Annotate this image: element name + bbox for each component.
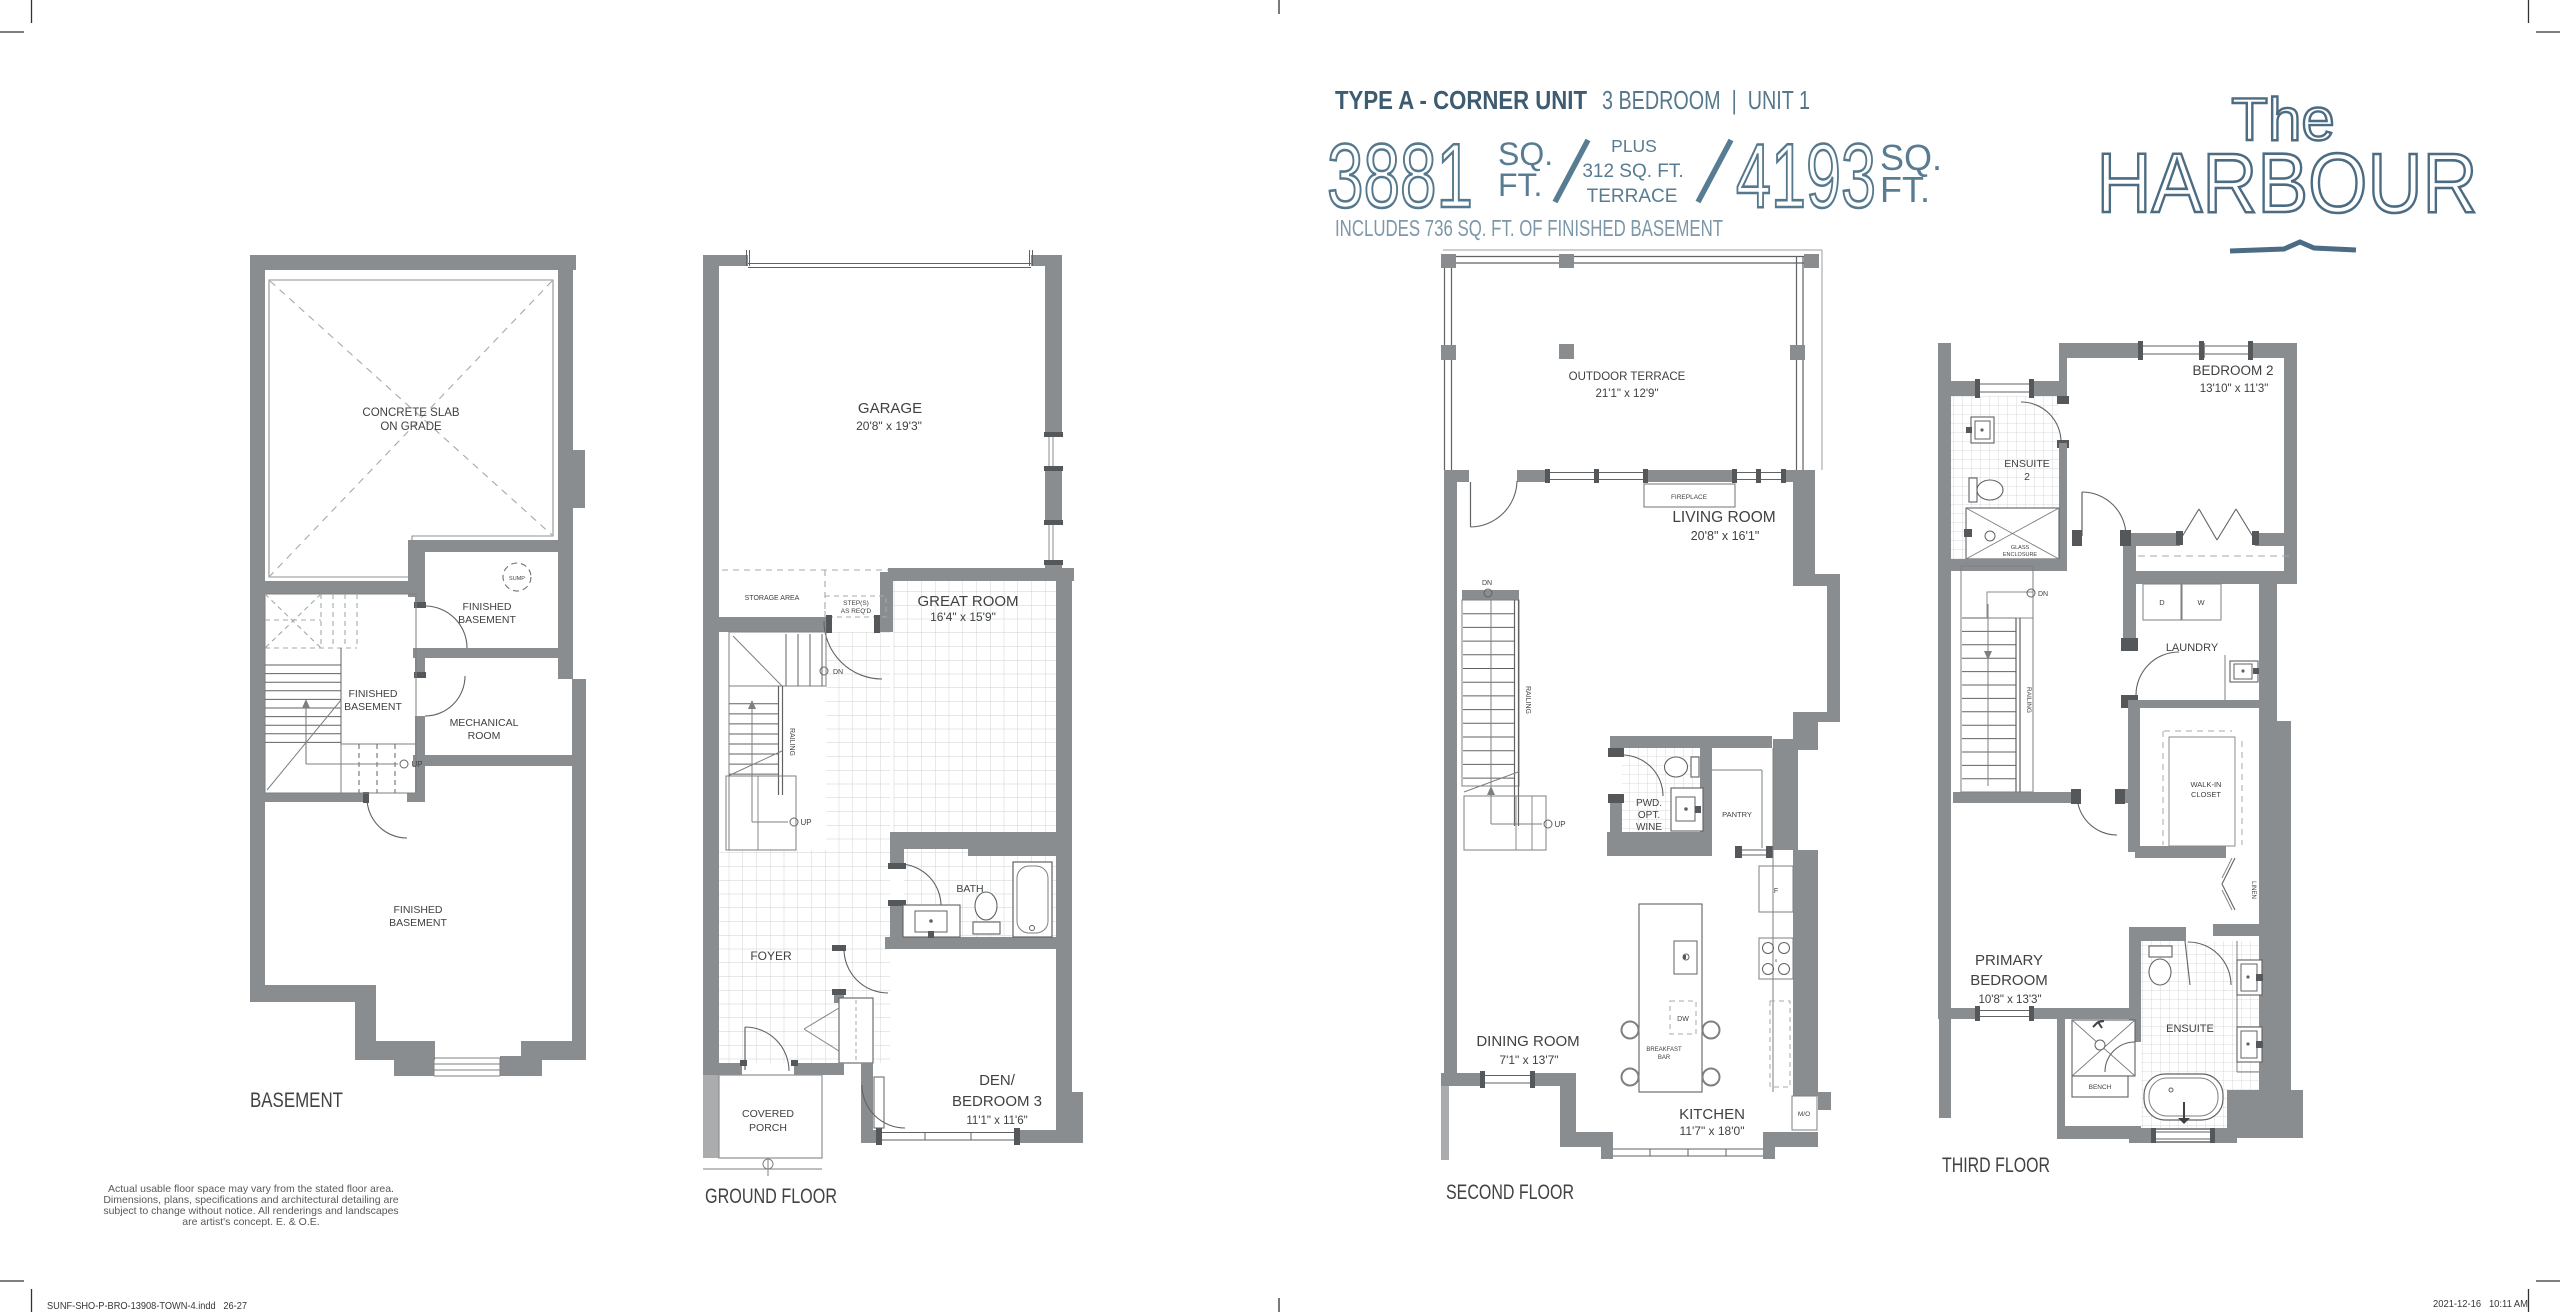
svg-text:UP: UP [1554,820,1565,829]
svg-text:7'1" x 13'7": 7'1" x 13'7" [1499,1053,1558,1067]
svg-text:DINING ROOM: DINING ROOM [1476,1033,1579,1050]
svg-text:SECOND FLOOR: SECOND FLOOR [1446,1181,1574,1204]
svg-text:OPT.: OPT. [1638,810,1660,821]
svg-text:D: D [2159,598,2165,607]
svg-text:BAR: BAR [1658,1055,1671,1061]
svg-text:BASEMENT: BASEMENT [344,701,402,713]
svg-text:RAILING: RAILING [2025,687,2032,713]
svg-text:10'8" x 13'3": 10'8" x 13'3" [1978,994,2041,1006]
svg-text:4193: 4193 [1736,126,1876,227]
svg-text:ENCLOSURE: ENCLOSURE [2003,552,2038,558]
svg-text:2: 2 [2024,471,2030,483]
svg-text:KITCHEN: KITCHEN [1679,1106,1745,1123]
svg-text:FT.: FT. [1498,167,1542,203]
svg-text:M/O: M/O [1798,1111,1810,1118]
svg-text:DW: DW [1677,1016,1689,1023]
svg-text:CLOSET: CLOSET [2191,790,2221,799]
svg-text:STORAGE AREA: STORAGE AREA [745,595,800,602]
svg-text:FT.: FT. [1880,169,1930,210]
svg-text:TYPE A - CORNER UNIT: TYPE A - CORNER UNIT [1335,85,1587,115]
svg-text:11'1" x 11'6": 11'1" x 11'6" [966,1115,1027,1127]
svg-text:FINISHED: FINISHED [393,904,442,916]
svg-text:BEDROOM 2: BEDROOM 2 [2192,363,2273,378]
svg-text:ENSUITE: ENSUITE [2004,458,2050,470]
svg-text:DEN/: DEN/ [979,1072,1016,1089]
svg-text:RAILING: RAILING [788,728,795,756]
svg-text:SUNF-SHO-P-BRO-13908-TOWN-4.in: SUNF-SHO-P-BRO-13908-TOWN-4.indd 26-27 [47,1300,247,1312]
svg-text:20'8" x 16'1": 20'8" x 16'1" [1691,529,1760,543]
svg-text:TERRACE: TERRACE [1587,186,1678,207]
svg-text:ROOM: ROOM [468,730,501,742]
svg-text:20'8" x 19'3": 20'8" x 19'3" [856,419,922,433]
svg-text:BREAKFAST: BREAKFAST [1646,1047,1682,1053]
svg-text:BASEMENT: BASEMENT [250,1089,343,1112]
svg-text:BEDROOM: BEDROOM [1970,972,2048,989]
svg-text:W: W [2197,598,2205,607]
svg-text:13'10" x 11'3": 13'10" x 11'3" [2200,383,2269,395]
svg-text:BASEMENT: BASEMENT [458,614,516,626]
svg-text:LINEN: LINEN [2250,881,2256,899]
svg-text:BENCH: BENCH [2089,1084,2112,1091]
svg-text:GREAT ROOM: GREAT ROOM [917,593,1018,610]
svg-text:DN: DN [2038,591,2048,598]
svg-text:3881: 3881 [1327,126,1473,227]
svg-text:11'7" x 18'0": 11'7" x 18'0" [1680,1124,1745,1138]
svg-text:3 BEDROOM | UNIT 1: 3 BEDROOM | UNIT 1 [1602,85,1810,115]
svg-text:DN: DN [1482,580,1492,587]
svg-text:PORCH: PORCH [749,1122,787,1134]
svg-text:16'4" x 15'9": 16'4" x 15'9" [930,610,996,624]
svg-text:LIVING ROOM: LIVING ROOM [1672,509,1775,526]
svg-text:UP: UP [411,760,422,769]
svg-text:FOYER: FOYER [750,949,792,963]
svg-text:PANTRY: PANTRY [1722,810,1752,819]
svg-text:CONCRETE SLAB: CONCRETE SLAB [362,407,459,419]
svg-text:UP: UP [800,818,811,827]
svg-text:HARBOUR: HARBOUR [2097,136,2478,230]
svg-text:2021-12-16 10:11 AM: 2021-12-16 10:11 AM [2433,1298,2528,1310]
svg-text:AS REQ'D: AS REQ'D [841,608,872,615]
svg-text:FINISHED: FINISHED [348,688,397,700]
svg-text:FINISHED: FINISHED [462,601,511,613]
svg-text:are artist's concept. E. & O.E: are artist's concept. E. & O.E. [182,1216,319,1228]
svg-text:THIRD FLOOR: THIRD FLOOR [1942,1154,2050,1177]
svg-text:INCLUDES 736 SQ. FT. OF FINISH: INCLUDES 736 SQ. FT. OF FINISHED BASEMEN… [1335,215,1723,241]
svg-text:PRIMARY: PRIMARY [1975,952,2043,969]
svg-text:COVERED: COVERED [742,1108,794,1120]
svg-text:PLUS: PLUS [1611,136,1657,156]
svg-text:WINE: WINE [1636,822,1662,833]
svg-text:GROUND FLOOR: GROUND FLOOR [705,1185,837,1208]
svg-text:312 SQ. FT.: 312 SQ. FT. [1582,161,1683,182]
svg-text:F: F [1774,888,1778,895]
svg-text:DN: DN [833,669,843,676]
svg-text:MECHANICAL: MECHANICAL [450,717,519,729]
svg-text:LAUNDRY: LAUNDRY [2166,642,2219,654]
svg-text:BEDROOM 3: BEDROOM 3 [952,1093,1042,1110]
svg-text:BASEMENT: BASEMENT [389,917,447,929]
svg-text:RAILING: RAILING [1524,686,1531,714]
svg-text:S: S [1775,958,1778,963]
svg-text:ON GRADE: ON GRADE [380,421,442,433]
svg-text:GLASS: GLASS [2011,545,2030,551]
svg-text:GARAGE: GARAGE [858,400,922,417]
svg-text:21'1" x 12'9": 21'1" x 12'9" [1595,388,1658,400]
svg-text:FIREPLACE: FIREPLACE [1671,494,1708,501]
svg-text:PWD.: PWD. [1636,798,1662,809]
svg-text:STEP(S): STEP(S) [843,600,869,607]
svg-text:ENSUITE: ENSUITE [2166,1023,2214,1035]
svg-text:SUMP: SUMP [509,576,525,582]
svg-text:WALK-IN: WALK-IN [2191,780,2222,789]
svg-text:OUTDOOR TERRACE: OUTDOOR TERRACE [1569,371,1686,383]
svg-text:BATH: BATH [956,883,983,895]
